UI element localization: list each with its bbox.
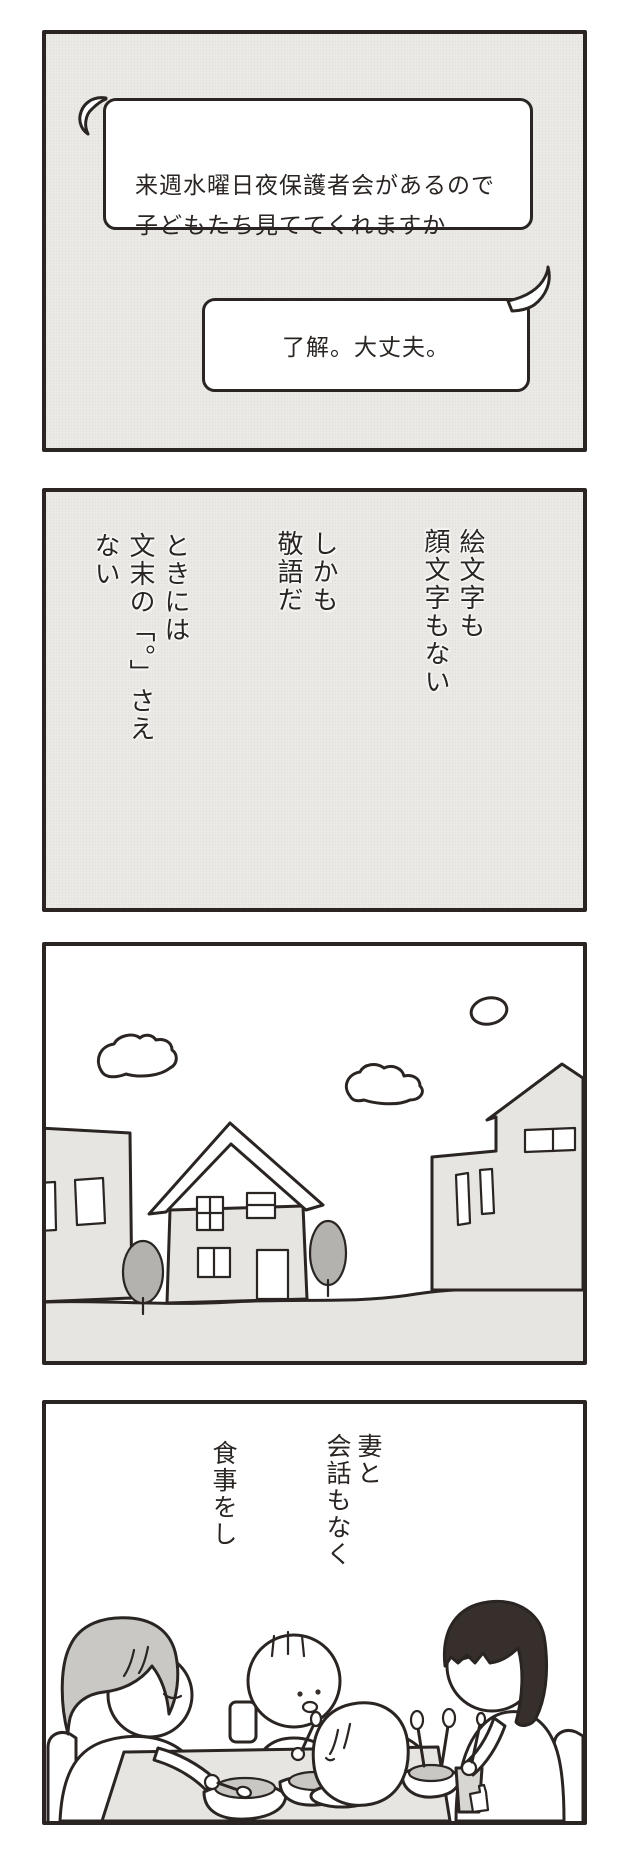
chairs [48, 1702, 583, 1821]
child1-body [256, 1738, 334, 1796]
child2-head [313, 1703, 408, 1806]
panel-2-narration: 絵文字も 顔文字もない しかも 敬語だ ときには 文末の「。」さえ ない [42, 488, 587, 912]
panel-1-chat: 来週水曜日夜保護者会があるので 子どもたち見ててくれますか 了解。大丈夫。 [42, 30, 587, 452]
child-chair-back [230, 1702, 256, 1742]
speech-bubble-left-text: 来週水曜日夜保護者会があるので 子どもたち見ててくれますか [135, 172, 495, 238]
house-center [149, 1123, 323, 1303]
mother-head [62, 1618, 192, 1737]
child1-hand [292, 1748, 304, 1760]
house-left [46, 1128, 132, 1302]
mother-bowl [204, 1778, 286, 1819]
child1-bowl [280, 1772, 350, 1805]
panel-4-dinner: 妻と 会話もなく 食事をし [42, 1400, 587, 1825]
child2-body [376, 1734, 440, 1821]
house-right [432, 1064, 583, 1290]
comic-page: 来週水曜日夜保護者会があるので 子どもたち見ててくれますか 了解。大丈夫。 絵文… [0, 0, 620, 1849]
cloud-middle [346, 1065, 422, 1104]
ground [46, 1285, 583, 1361]
family-dinner-drawing [46, 1404, 583, 1821]
panel-3-neighborhood [42, 942, 587, 1365]
father-arm [462, 1713, 505, 1775]
father-body [456, 1712, 564, 1821]
speech-bubble-right: 了解。大丈夫。 [202, 298, 530, 392]
tree-right [310, 1221, 346, 1296]
father-head [444, 1601, 546, 1725]
speech-bubble-right-text: 了解。大丈夫。 [282, 328, 450, 362]
caption-no-period: ときには 文末の「。」さえ ない [88, 532, 193, 743]
caption-polite-language: しかも 敬語だ [271, 530, 341, 614]
cloud-left [98, 1035, 176, 1077]
mother-body [60, 1736, 218, 1821]
caption-no-emoji: 絵文字も 顔文字もない [418, 528, 488, 696]
mother-arm [154, 1748, 252, 1799]
child2-plate [311, 1785, 373, 1807]
speech-bubble-left: 来週水曜日夜保護者会があるので 子どもたち見ててくれますか [103, 98, 533, 230]
dinner-table [102, 1747, 450, 1821]
sauce-bottle [470, 1785, 488, 1812]
cloud-small [469, 995, 510, 1028]
caption-wife-no-conversation: 妻と 会話もなく [321, 1433, 383, 1568]
neighborhood-scene-drawing [46, 946, 583, 1361]
drinking-cup [456, 1768, 482, 1812]
child1-head [248, 1632, 340, 1760]
serving-pot [402, 1709, 460, 1797]
tree-left [123, 1241, 163, 1314]
caption-eating-meal: 食事をし [207, 1440, 238, 1548]
